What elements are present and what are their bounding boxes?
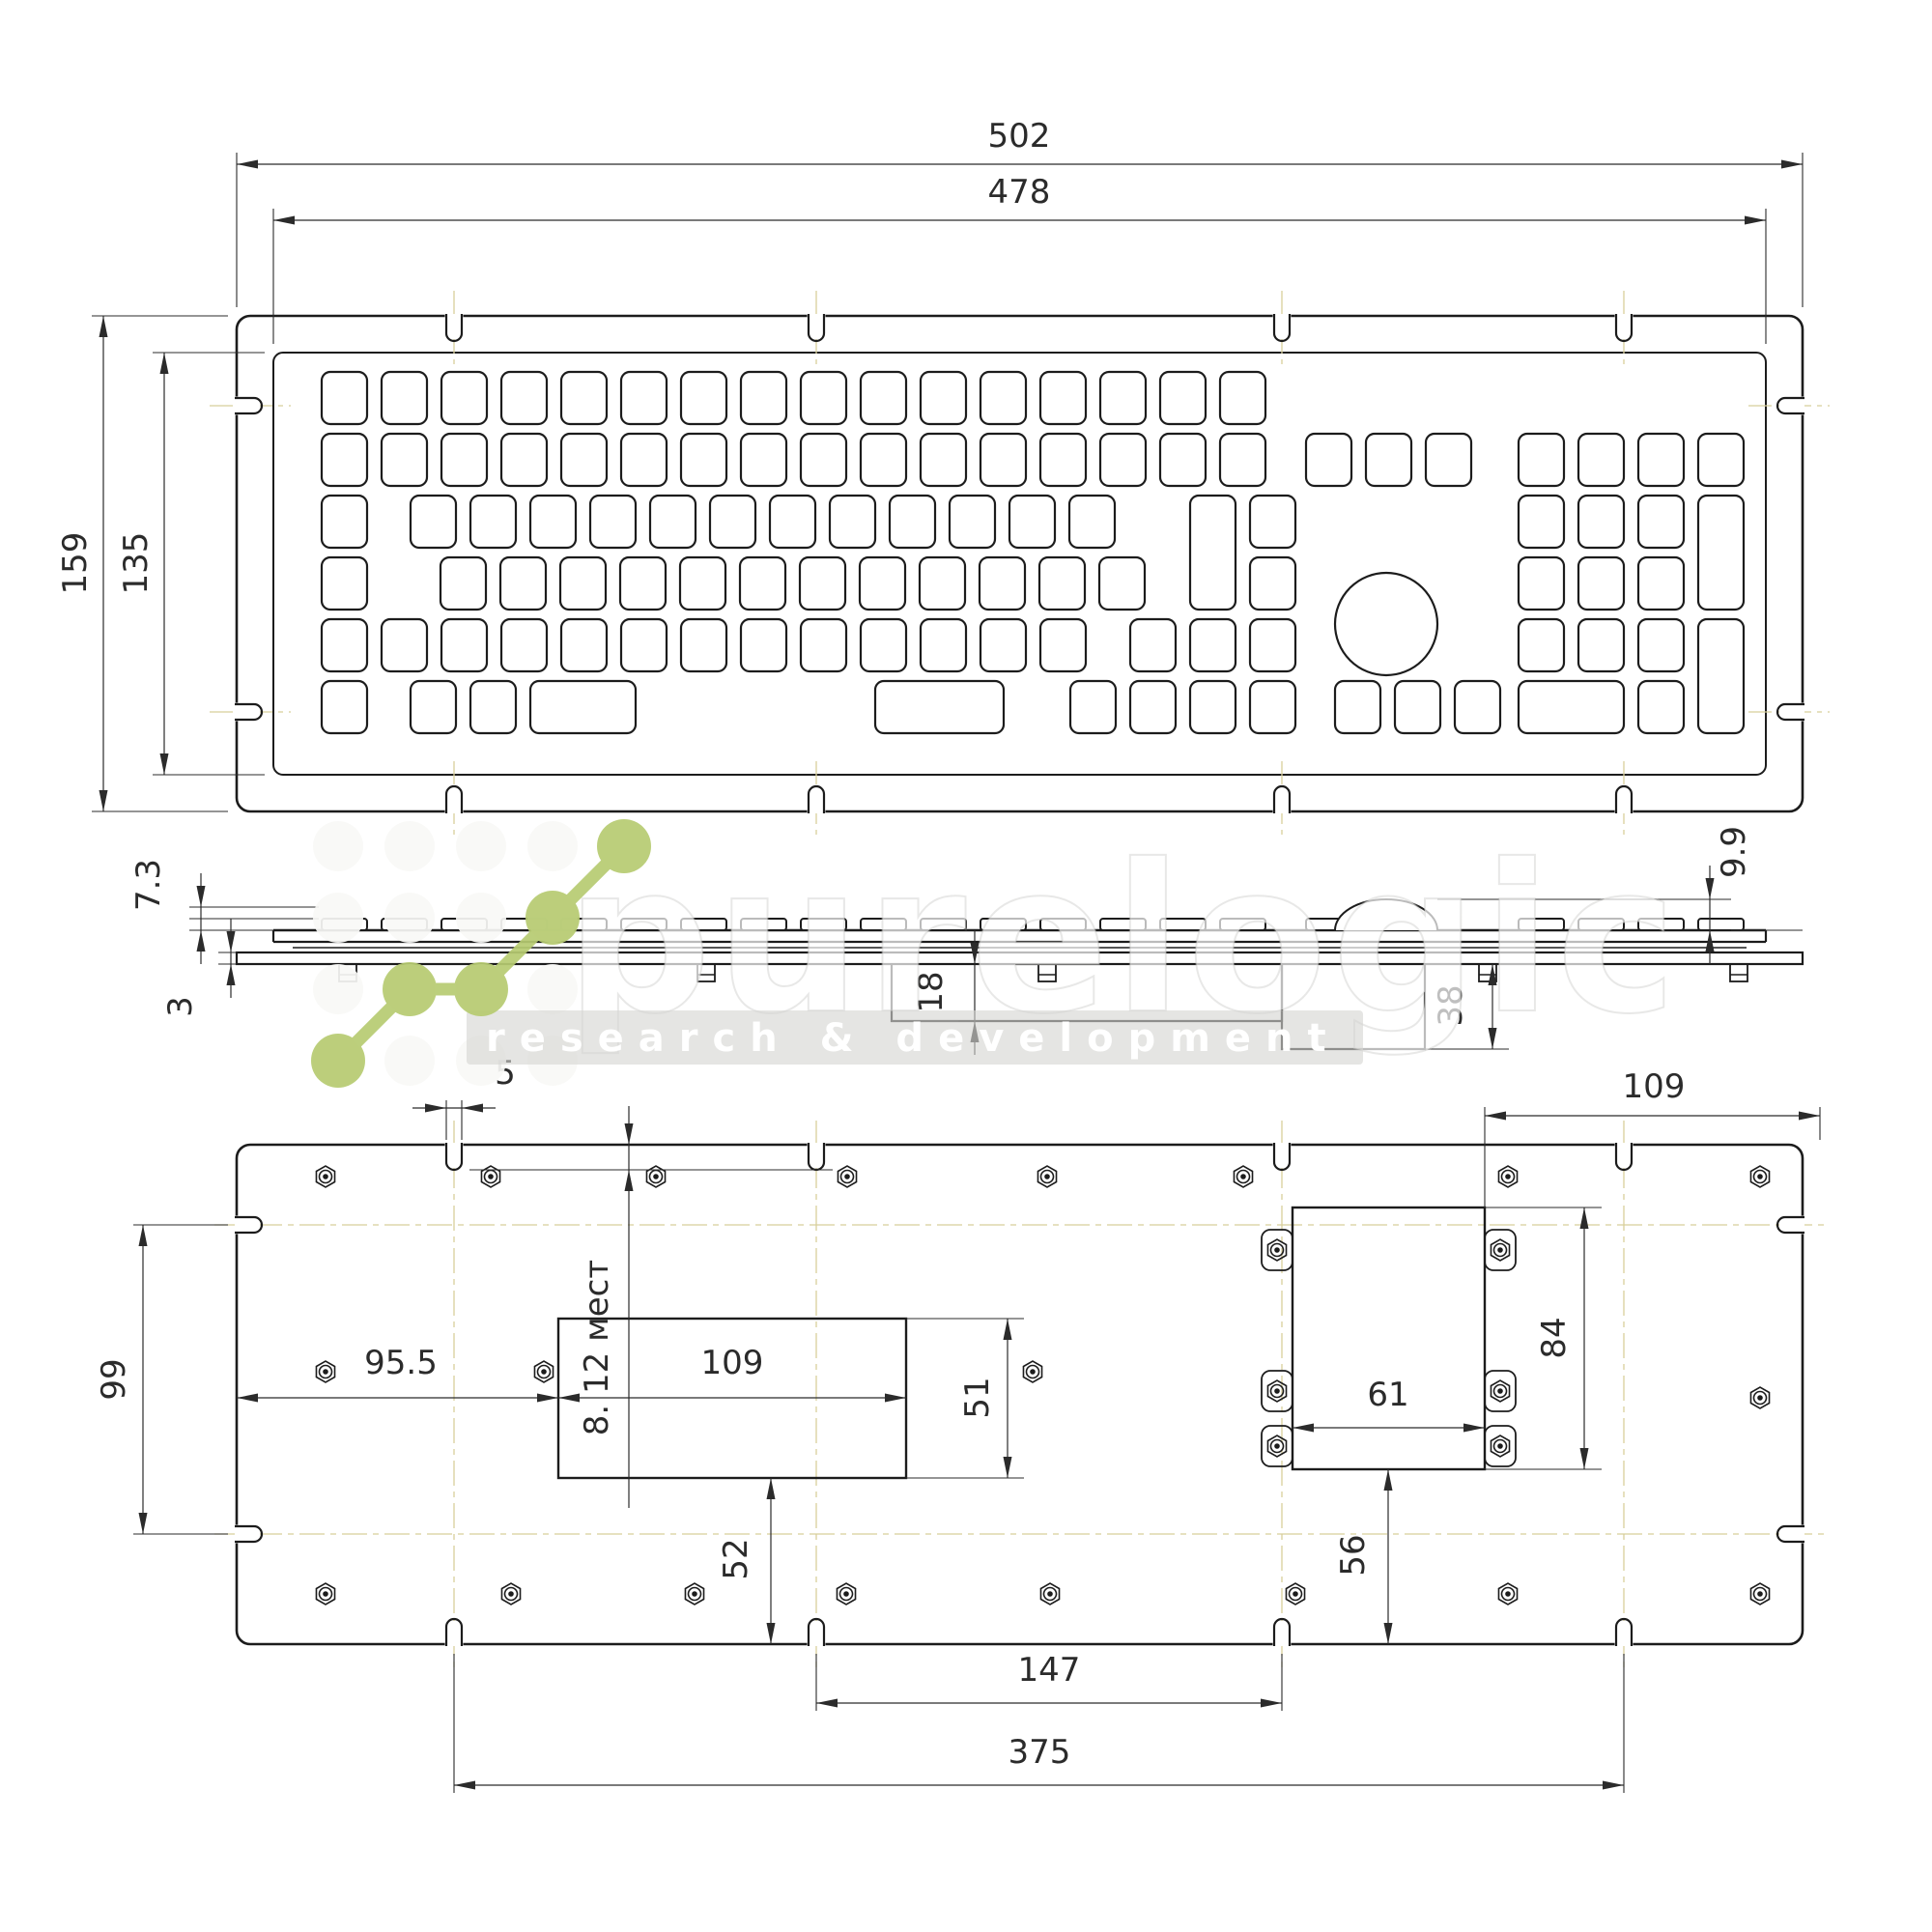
- key-cutout: [1638, 557, 1684, 610]
- dimension-arrow: [537, 1394, 558, 1403]
- screw-stud: [1491, 1380, 1509, 1402]
- dimension-arrow: [197, 930, 206, 952]
- screw-center: [1274, 1388, 1280, 1394]
- screw-center: [1274, 1443, 1280, 1449]
- screw-center: [653, 1174, 659, 1179]
- dimension-text: 95.5: [364, 1344, 438, 1382]
- screw-center: [1497, 1388, 1503, 1394]
- screw-center: [844, 1174, 850, 1179]
- screw-center: [1497, 1247, 1503, 1253]
- screw-center: [508, 1591, 514, 1597]
- key-cutout: [921, 372, 966, 424]
- key-cutout: [800, 557, 845, 610]
- key-cutout: [650, 496, 696, 548]
- key-cutout: [1335, 681, 1380, 733]
- dimension-arrow: [454, 1781, 475, 1790]
- dimension-arrow: [816, 1699, 838, 1708]
- screw-stud: [1750, 1387, 1769, 1408]
- key-cutout: [741, 434, 786, 486]
- screw-stud: [316, 1361, 334, 1382]
- screw-stud: [1750, 1583, 1769, 1605]
- key-cutout: [382, 434, 427, 486]
- drawing-stage: 502478159135 7.3318389.9 58. 12 мест1099…: [0, 0, 1932, 1932]
- screw-center: [1757, 1395, 1763, 1401]
- key-cutout: [1250, 619, 1295, 671]
- key-cutout: [621, 372, 667, 424]
- key-cutout: [801, 619, 846, 671]
- screw-stud: [1040, 1583, 1059, 1605]
- key-cutout: [1306, 434, 1351, 486]
- screw-center: [1274, 1247, 1280, 1253]
- dimension-text: 9.9: [1715, 826, 1753, 878]
- dimension-arrow: [1384, 1623, 1393, 1644]
- key-cutout: [1130, 619, 1176, 671]
- screw-stud: [501, 1583, 520, 1605]
- screw-stud: [646, 1166, 665, 1187]
- key-cutout: [681, 619, 726, 671]
- screw-stud: [837, 1583, 855, 1605]
- dimension-arrow: [1004, 1319, 1012, 1340]
- key-cutout: [470, 681, 516, 733]
- watermark-pale-dot: [384, 1036, 435, 1086]
- key-cutout: [1100, 372, 1146, 424]
- key-cutout: [530, 496, 576, 548]
- dimension-text: 159: [56, 532, 95, 595]
- screw-stud: [1491, 1435, 1509, 1457]
- key-cutout: [322, 434, 367, 486]
- key-cutout: [980, 557, 1025, 610]
- key-cutout: [1519, 496, 1564, 548]
- key-cutout: [1366, 434, 1411, 486]
- dimension-109: 109: [1485, 1067, 1820, 1207]
- key-cutout: [440, 557, 486, 610]
- screw-center: [1047, 1591, 1053, 1597]
- keyboard-engineering-drawing: 502478159135 7.3318389.9 58. 12 мест1099…: [0, 0, 1932, 1932]
- watermark-pale-dot: [313, 893, 363, 943]
- screw-center: [1497, 1443, 1503, 1449]
- key-cutout: [1578, 496, 1624, 548]
- key-cutout: [861, 619, 906, 671]
- dimension-text: 3: [161, 996, 200, 1017]
- logo-chain-dot: [526, 891, 580, 945]
- key-cutout: [1578, 434, 1624, 486]
- dimension-56: 56: [1334, 1469, 1393, 1644]
- key-cutout: [1250, 557, 1295, 610]
- watermark-pale-dot: [456, 821, 506, 871]
- dimension-arrow: [1580, 1207, 1589, 1229]
- key-cutout: [980, 434, 1026, 486]
- key-cutout: [322, 372, 367, 424]
- logo-chain-dot: [311, 1034, 365, 1088]
- key-cutout: [1455, 681, 1500, 733]
- key-cutout: [1638, 619, 1684, 671]
- dimension-arrow: [625, 1170, 634, 1191]
- screw-stud: [1286, 1583, 1304, 1605]
- key-cutout: [322, 681, 367, 733]
- screw-stud: [1234, 1166, 1252, 1187]
- dimension-text: 99: [95, 1358, 133, 1400]
- key-cutout: [1160, 372, 1206, 424]
- dimension-arrow: [160, 753, 169, 775]
- watermark-pale-dot: [456, 893, 506, 943]
- dimension-text: 478: [988, 173, 1051, 212]
- key-cutout: [411, 496, 456, 548]
- trackball-module-cutout: [1293, 1207, 1485, 1469]
- dimension-arrow: [1745, 216, 1766, 225]
- key-cutout: [890, 496, 935, 548]
- key-cutout: [621, 434, 667, 486]
- screw-stud: [838, 1166, 856, 1187]
- key-cutout: [950, 496, 995, 548]
- key-cutout: [681, 372, 726, 424]
- key-cutout: [1578, 557, 1624, 610]
- dimension-arrow: [425, 1104, 446, 1113]
- dimension-arrow: [885, 1394, 906, 1403]
- dimension-text: 52: [717, 1538, 755, 1579]
- dimension-8.-12-мест: 8. 12 мест: [469, 1106, 833, 1508]
- tall-key-cutout: [1698, 496, 1744, 610]
- key-cutout: [1638, 496, 1684, 548]
- key-cutout: [861, 434, 906, 486]
- key-cutout: [441, 372, 487, 424]
- dimension-text: 147: [1018, 1651, 1081, 1690]
- key-cutout: [1519, 619, 1564, 671]
- wide-key-cutout: [1519, 681, 1624, 733]
- screw-stud: [316, 1166, 334, 1187]
- dimension-text: 109: [1623, 1067, 1686, 1106]
- key-cutout: [1040, 372, 1086, 424]
- dimension-text: 375: [1009, 1733, 1071, 1772]
- key-cutout: [830, 496, 875, 548]
- screw-center: [1293, 1591, 1298, 1597]
- dimension-arrow: [1603, 1781, 1624, 1790]
- dimension-arrow: [1485, 1112, 1506, 1121]
- key-cutout: [1519, 434, 1564, 486]
- dimension-arrow: [625, 1123, 634, 1145]
- key-cutout: [441, 619, 487, 671]
- key-cutout: [501, 372, 547, 424]
- dimension-arrow: [160, 353, 169, 374]
- screw-center: [1757, 1174, 1763, 1179]
- key-cutout: [980, 372, 1026, 424]
- key-cutout: [561, 372, 607, 424]
- key-cutout: [1638, 681, 1684, 733]
- dimension-arrow: [1463, 1424, 1485, 1433]
- key-cutout: [1009, 496, 1055, 548]
- watermark-pale-dot: [313, 964, 363, 1014]
- screw-stud: [1267, 1239, 1286, 1261]
- key-cutout: [770, 496, 815, 548]
- dimension-arrow: [227, 964, 236, 985]
- watermark-tagline-text: research & development: [486, 1016, 1341, 1061]
- dimension-84: 84: [1485, 1207, 1602, 1469]
- dimension-arrow: [462, 1104, 483, 1113]
- panel-outline: [237, 316, 1803, 811]
- dimension-arrow: [1261, 1699, 1282, 1708]
- tall-key-cutout: [1698, 619, 1744, 733]
- key-cutout: [1698, 434, 1744, 486]
- key-cutout: [500, 557, 546, 610]
- key-cutout: [561, 619, 607, 671]
- screw-stud: [1037, 1166, 1056, 1187]
- key-cutouts: [322, 372, 1744, 733]
- key-cutout: [1190, 619, 1236, 671]
- screw-stud: [1750, 1166, 1769, 1187]
- key-cutout: [801, 434, 846, 486]
- key-cutout: [1578, 619, 1624, 671]
- key-cutout: [382, 372, 427, 424]
- trackball-cutout: [1335, 573, 1437, 675]
- key-cutout: [1039, 557, 1085, 610]
- dimension-arrow: [99, 790, 108, 811]
- screw-center: [541, 1369, 547, 1375]
- dimension-arrow: [1004, 1457, 1012, 1478]
- dimension-arrow: [1799, 1112, 1820, 1121]
- screw-center: [1505, 1591, 1511, 1597]
- dimension-text: 135: [117, 532, 156, 595]
- key-cutout: [680, 557, 725, 610]
- wide-key-cutout: [875, 681, 1004, 733]
- screw-center: [1044, 1174, 1050, 1179]
- dimension-text: 8. 12 мест: [578, 1260, 616, 1435]
- key-cutout: [921, 619, 966, 671]
- dimension-arrow: [273, 216, 295, 225]
- key-cutout: [561, 434, 607, 486]
- dimension-arrow: [1580, 1448, 1589, 1469]
- tall-key-cutout: [1190, 496, 1236, 610]
- key-cutout: [501, 619, 547, 671]
- key-cutout: [1638, 434, 1684, 486]
- key-cutout: [1040, 434, 1086, 486]
- key-cutout: [322, 619, 367, 671]
- dimension-text: 84: [1535, 1317, 1574, 1358]
- key-cutout: [1069, 496, 1115, 548]
- logo-chain-dot: [597, 819, 651, 873]
- mounting-stud: [1730, 964, 1747, 981]
- dimension-arrow: [139, 1225, 148, 1246]
- dimension-arrow: [767, 1623, 776, 1644]
- key-cutout: [382, 619, 427, 671]
- key-cutout: [560, 557, 606, 610]
- screw-stud: [534, 1361, 553, 1382]
- screw-center: [1757, 1591, 1763, 1597]
- rear-panel-outline: [237, 1145, 1803, 1644]
- watermark-pale-dot: [313, 821, 363, 871]
- key-cutout: [621, 619, 667, 671]
- wide-key-cutout: [530, 681, 636, 733]
- key-cutout: [1099, 557, 1145, 610]
- key-cutout: [1160, 434, 1206, 486]
- dimension-95.5: 95.5: [237, 1344, 558, 1403]
- dimension-arrow: [1384, 1469, 1393, 1491]
- rear-mounting-view: 58. 12 мест1099995.51095161845652147375: [95, 1054, 1826, 1793]
- dimension-52: 52: [717, 1478, 776, 1644]
- dimension-text: 61: [1367, 1376, 1408, 1414]
- keycap-profile: [1698, 919, 1744, 930]
- dimension-arrow: [558, 1394, 580, 1403]
- key-cutout: [1426, 434, 1471, 486]
- screw-stud: [1267, 1435, 1286, 1457]
- key-cutout: [441, 434, 487, 486]
- key-cutout: [861, 372, 906, 424]
- key-cutout: [740, 557, 785, 610]
- watermark: purelogic research & development: [311, 819, 1681, 1088]
- dimension-text: 51: [958, 1377, 997, 1418]
- logo-chain-dot: [454, 962, 508, 1016]
- key-cutout: [741, 372, 786, 424]
- dimension-7.3: 7.3: [129, 859, 319, 964]
- dimension-arrow: [227, 931, 236, 952]
- key-cutout: [1100, 434, 1146, 486]
- key-cutout: [1519, 557, 1564, 610]
- dimension-text: 502: [988, 117, 1051, 156]
- screw-stud: [1267, 1380, 1286, 1402]
- dimension-arrow: [1706, 878, 1715, 899]
- dimension-arrow: [197, 886, 206, 907]
- screw-stud: [1491, 1239, 1509, 1261]
- screw-center: [488, 1174, 494, 1179]
- dimension-502: 502: [237, 117, 1803, 307]
- dimension-61: 61: [1293, 1376, 1485, 1433]
- dimension-arrow: [237, 1394, 258, 1403]
- screw-center: [1030, 1369, 1036, 1375]
- key-cutout: [1395, 681, 1440, 733]
- key-cutout: [1220, 372, 1265, 424]
- dimension-arrow: [237, 160, 258, 169]
- key-cutout: [681, 434, 726, 486]
- key-cutout: [501, 434, 547, 486]
- dimension-arrow: [139, 1513, 148, 1534]
- key-cutout: [590, 496, 636, 548]
- key-cutout: [920, 557, 965, 610]
- dimension-3: 3: [161, 919, 237, 1017]
- key-cutout: [1130, 681, 1176, 733]
- logo-chain-dot: [383, 962, 437, 1016]
- watermark-pale-dot: [384, 893, 435, 943]
- dimension-arrow: [767, 1478, 776, 1499]
- key-cutout: [1070, 681, 1116, 733]
- screw-center: [692, 1591, 697, 1597]
- panel-fold-line: [273, 353, 1766, 775]
- screw-stud: [316, 1583, 334, 1605]
- dimension-51: 51: [906, 1319, 1024, 1478]
- key-cutout: [322, 496, 367, 548]
- dimension-arrow: [1781, 160, 1803, 169]
- dimension-text: 56: [1334, 1534, 1373, 1576]
- key-cutout: [1250, 496, 1295, 548]
- screw-stud: [685, 1583, 703, 1605]
- key-cutout: [980, 619, 1026, 671]
- key-cutout: [921, 434, 966, 486]
- key-cutout: [1250, 681, 1295, 733]
- key-cutout: [860, 557, 905, 610]
- front-panel-view: 502478159135: [56, 117, 1830, 837]
- dimension-arrow: [1293, 1424, 1314, 1433]
- key-cutout: [801, 372, 846, 424]
- key-cutout: [322, 557, 367, 610]
- key-cutout: [411, 681, 456, 733]
- key-cutout: [741, 619, 786, 671]
- key-cutout: [710, 496, 755, 548]
- screw-center: [323, 1591, 328, 1597]
- key-cutout: [620, 557, 666, 610]
- dimension-147: 147: [816, 1651, 1282, 1711]
- dimension-478: 478: [273, 173, 1766, 344]
- screw-stud: [1498, 1166, 1517, 1187]
- dimension-arrow: [99, 316, 108, 337]
- watermark-pale-dot: [384, 821, 435, 871]
- dimension-text: 7.3: [129, 859, 168, 911]
- dimension-99: 99: [95, 1225, 228, 1534]
- screw-center: [1240, 1174, 1246, 1179]
- dimension-text: 109: [701, 1344, 764, 1382]
- screw-center: [323, 1174, 328, 1179]
- screw-stud: [481, 1166, 499, 1187]
- key-cutout: [470, 496, 516, 548]
- screw-stud: [1498, 1583, 1517, 1605]
- screw-stud: [1023, 1361, 1041, 1382]
- screw-center: [843, 1591, 849, 1597]
- key-cutout: [1220, 434, 1265, 486]
- key-cutout: [1190, 681, 1236, 733]
- screw-center: [1505, 1174, 1511, 1179]
- screw-center: [323, 1369, 328, 1375]
- key-cutout: [1040, 619, 1086, 671]
